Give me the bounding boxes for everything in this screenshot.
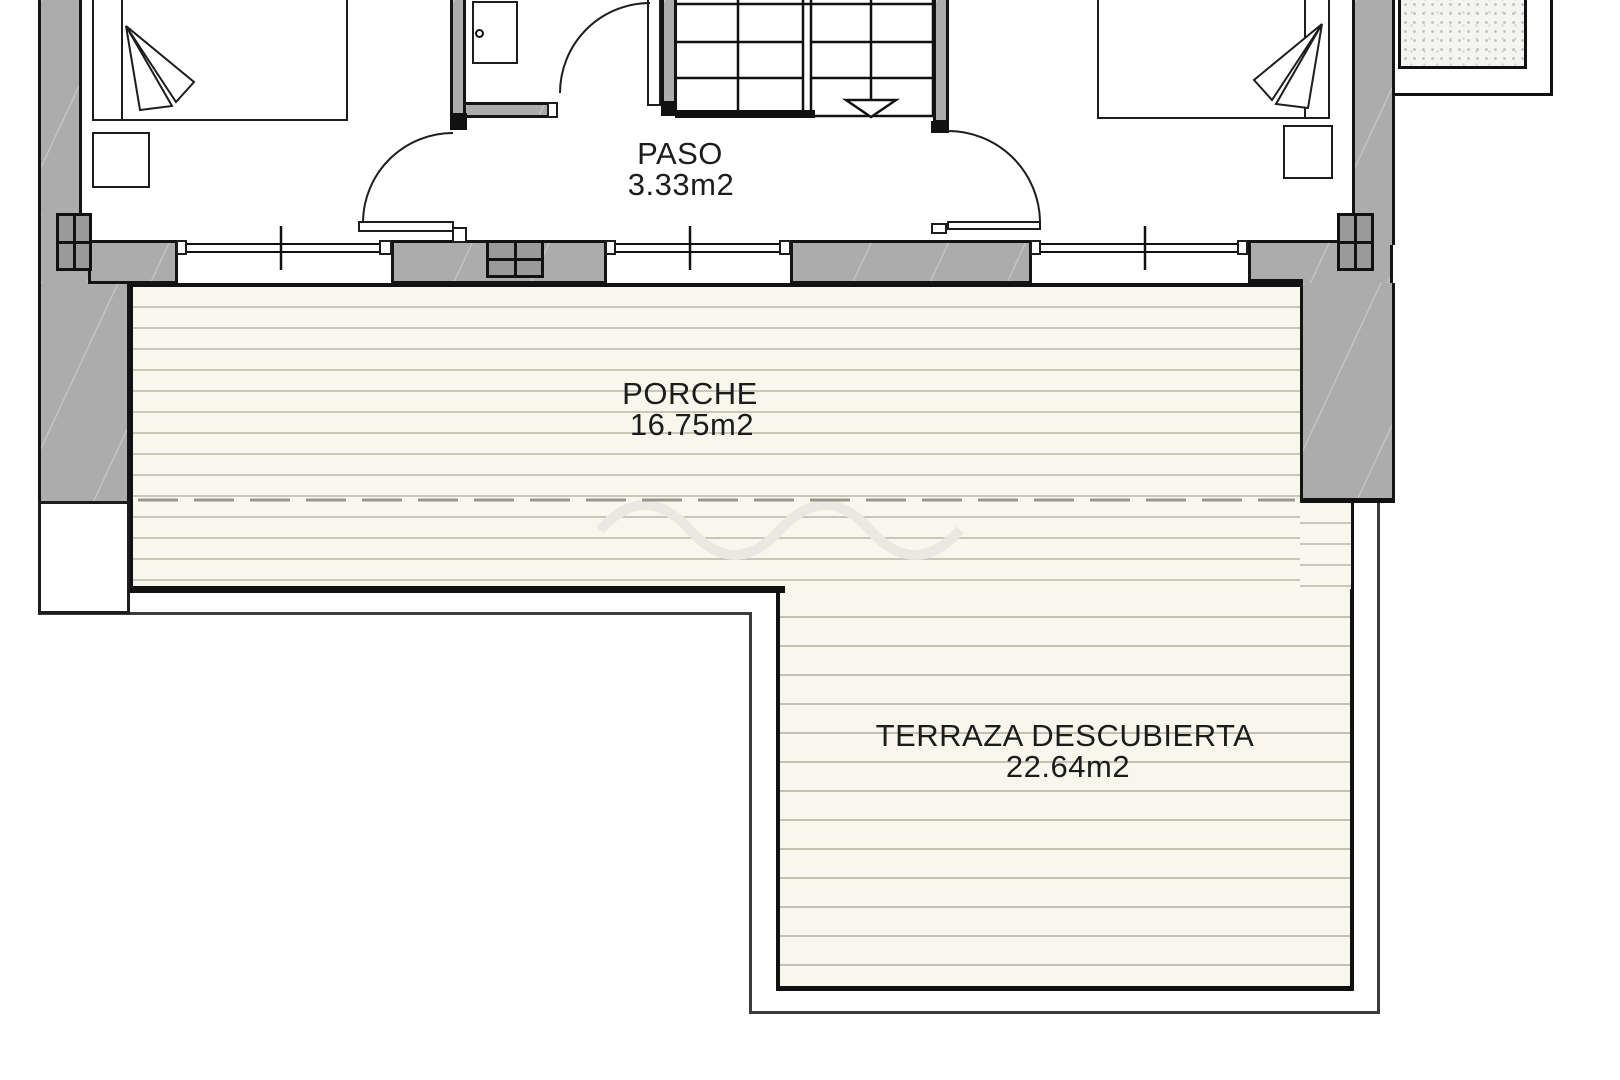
column-center [486, 240, 544, 278]
door-leaf-hall-open [647, 0, 661, 106]
door-jamb-left-bedroom [452, 227, 467, 243]
plot-line-left-horizontal [38, 612, 752, 615]
nightstand-right [1283, 125, 1333, 179]
bed-left [92, 0, 348, 121]
room-area-porche: 16.75m2 [630, 407, 754, 443]
band-wall-a [88, 240, 178, 284]
porche-bottom-edge [130, 586, 785, 593]
column-left [56, 213, 92, 271]
window-jamb [1237, 240, 1248, 255]
wall-strip-door-left [450, 0, 466, 117]
wall-strip-stair-right [933, 0, 949, 123]
window-jamb [1030, 240, 1041, 255]
door-jamb-hall [547, 102, 558, 118]
plot-line-left-vertical [749, 612, 752, 1014]
door-swing-right-bedroom [948, 131, 1040, 221]
door-swing-hall [560, 3, 650, 93]
window-glazing-middle [616, 243, 779, 253]
wall-left-upper [38, 0, 82, 215]
window-glazing-left [187, 243, 379, 253]
wall-strip-stair-left [661, 0, 677, 107]
door-jamb-right-bedroom [931, 223, 947, 234]
staircase [677, 0, 933, 118]
column-right [1337, 213, 1374, 271]
jamb-cap [931, 121, 949, 133]
deck-right-strip [1300, 503, 1354, 592]
lightwell-outer-right [1550, 0, 1553, 96]
jamb-cap [450, 113, 467, 130]
band-wall-c [790, 240, 1032, 284]
stair-down-arrow-icon [846, 100, 896, 117]
wall-right-upper [1352, 0, 1395, 245]
window-jamb [379, 240, 392, 255]
plot-line-right-vertical [1377, 503, 1380, 1014]
nightstand-left [92, 132, 150, 188]
door-handle-icon [475, 29, 484, 38]
bed-right [1097, 0, 1330, 119]
stair-landing-edge [675, 110, 815, 118]
wall-right-L [1300, 283, 1395, 503]
band-wall-d-bottom-line [1248, 279, 1303, 283]
window-jamb [176, 240, 187, 255]
window-jamb [779, 240, 791, 255]
door-swing-left-bedroom [363, 133, 453, 221]
window-jamb [605, 240, 616, 255]
wall-strip-door-bottom [463, 102, 550, 118]
door-leaf-right-bedroom [947, 221, 1041, 230]
wall-left-lower [38, 281, 130, 503]
room-area-paso: 3.33m2 [628, 167, 734, 203]
wall-left-footing [38, 501, 130, 614]
plot-line-bottom [749, 1011, 1380, 1014]
door-leaf-left-bedroom [358, 221, 454, 232]
lightwell-outer-bottom [1395, 93, 1553, 96]
room-area-terraza: 22.64m2 [1006, 749, 1130, 785]
terraza-deck [776, 589, 1354, 991]
window-glazing-right [1041, 243, 1237, 253]
floor-plan-canvas: PASO 3.33m2 PORCHE 16.75m2 TERRAZA DESCU… [0, 0, 1620, 1080]
lightwell-gravel [1398, 0, 1527, 69]
